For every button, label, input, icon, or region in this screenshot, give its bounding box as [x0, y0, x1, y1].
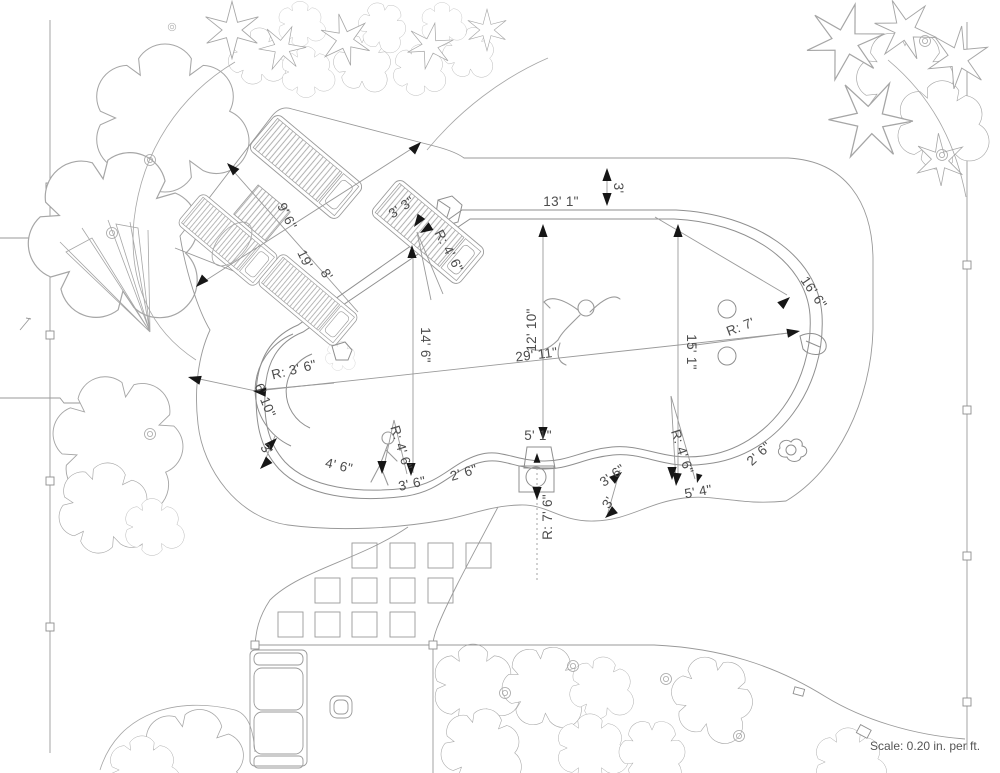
- dim-label: 13' 1": [543, 194, 578, 209]
- flower-icon: [778, 439, 806, 461]
- dim-label: 2' 6": [448, 461, 479, 483]
- pool-plan-canvas: 9' 6" 19' 8' 3' 3" R: 4' 6" 13' 1" 3' 16…: [0, 0, 1000, 773]
- dim-label: 2' 6": [744, 439, 774, 469]
- dim-label: 12' 10": [524, 308, 539, 351]
- paver: [315, 578, 340, 603]
- dim-label: 8': [318, 266, 336, 283]
- tick-mark: [20, 318, 31, 330]
- paver-grid: [278, 543, 491, 637]
- dim-label: 15' 1": [684, 334, 699, 369]
- dim-label: R: 7' 6": [540, 494, 555, 540]
- boundary-marker: [46, 331, 54, 339]
- planting-beds-and-trees: [10, 0, 997, 773]
- dim-label: 3' 6": [597, 461, 628, 489]
- paver: [315, 612, 340, 637]
- dim-label: 4' 6": [324, 455, 354, 476]
- dim-label: 5' 4": [683, 482, 713, 502]
- paver: [428, 578, 453, 603]
- pool-light: [718, 347, 736, 365]
- patio-marker: [429, 641, 437, 649]
- pool-light: [718, 300, 736, 318]
- boundary-marker: [46, 477, 54, 485]
- flower-center: [786, 445, 796, 455]
- sofa: [250, 650, 307, 768]
- slide-icon: [524, 447, 555, 468]
- boundary-marker: [963, 552, 971, 560]
- side-table: [330, 696, 352, 718]
- paver: [390, 578, 415, 603]
- tree-trunk: [168, 23, 176, 31]
- dimension-annotations: 9' 6" 19' 8' 3' 3" R: 4' 6" 13' 1" 3' 16…: [187, 139, 830, 580]
- dim-label: 16' 6": [798, 274, 830, 312]
- slide-base-circle: [526, 467, 546, 487]
- dim-label: 14' 6": [418, 327, 433, 362]
- boundary-marker: [46, 623, 54, 631]
- tree-canopy: [126, 499, 185, 556]
- walkway-edge: [433, 507, 498, 645]
- paver: [390, 612, 415, 637]
- dim-label: 29' 11": [515, 345, 559, 365]
- dim-label: R: 4' 6": [387, 424, 415, 472]
- boundary-marker: [963, 406, 971, 414]
- lounge-chair: [370, 178, 487, 287]
- ladder-icon: [800, 334, 826, 355]
- paver: [390, 543, 415, 568]
- dim-label: 5' 1": [524, 428, 552, 443]
- paver: [352, 612, 377, 637]
- dim-label: 3': [599, 494, 617, 511]
- paver: [466, 543, 491, 568]
- dim-label: R: 7': [724, 315, 756, 339]
- boundary-marker: [963, 698, 971, 706]
- paver: [278, 612, 303, 637]
- boundary-marker: [963, 261, 971, 269]
- dim-label: R: 3' 6": [270, 357, 318, 383]
- dim-label: 3' 6": [397, 473, 427, 493]
- dim-label: 3': [611, 183, 626, 194]
- patio-marker: [251, 641, 259, 649]
- scale-label: Scale: 0.20 in. per ft.: [870, 739, 980, 753]
- tree-trunk: [661, 674, 672, 685]
- paver: [428, 543, 453, 568]
- paver: [352, 578, 377, 603]
- edge-notch: [793, 687, 804, 696]
